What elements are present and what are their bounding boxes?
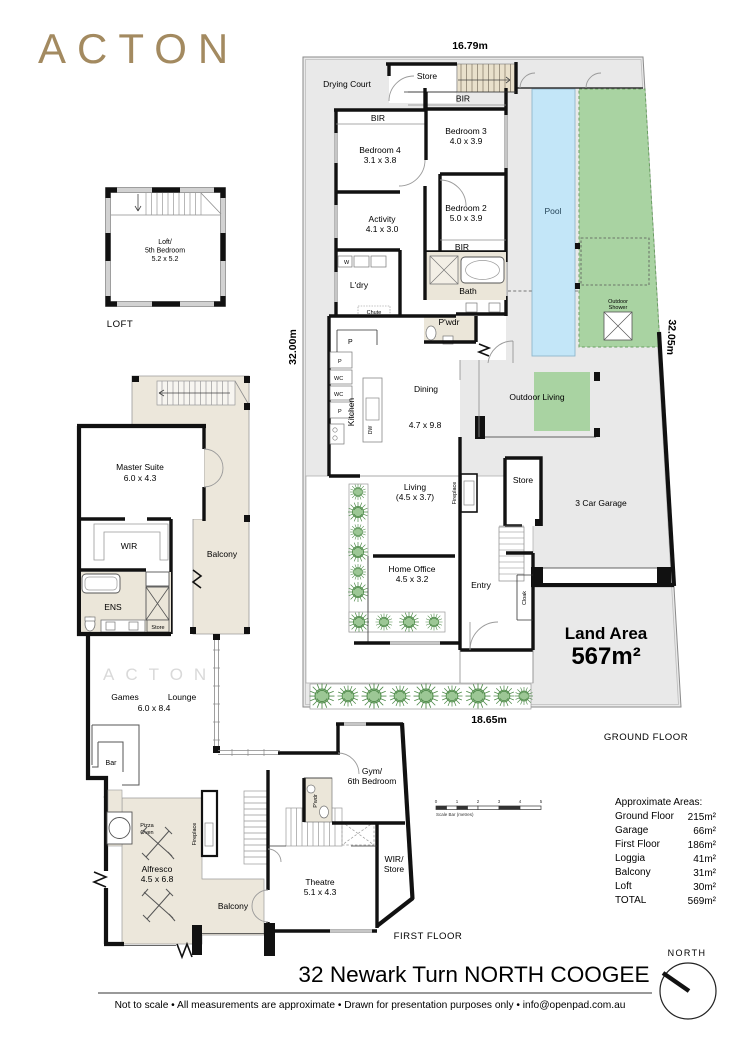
svg-text:BIR: BIR: [455, 242, 469, 252]
svg-text:WIR/: WIR/: [385, 854, 405, 864]
svg-text:Master Suite: Master Suite: [116, 462, 164, 472]
svg-text:Store: Store: [151, 625, 164, 631]
svg-text:Bath: Bath: [459, 286, 477, 296]
svg-text:DW: DW: [368, 426, 374, 435]
svg-text:Drying Court: Drying Court: [323, 79, 371, 89]
svg-text:Balcony: Balcony: [218, 901, 249, 911]
svg-text:Store: Store: [384, 864, 405, 874]
svg-text:(4.5 x 3.7): (4.5 x 3.7): [396, 492, 434, 502]
svg-text:215m²: 215m²: [688, 812, 717, 823]
svg-text:Theatre: Theatre: [305, 877, 335, 887]
svg-text:P: P: [348, 339, 353, 346]
svg-text:Balcony: Balcony: [615, 867, 651, 878]
svg-text:4.0 x 3.9: 4.0 x 3.9: [450, 136, 483, 146]
svg-text:Bedroom 2: Bedroom 2: [445, 203, 487, 213]
svg-text:P'wdr: P'wdr: [313, 794, 319, 808]
svg-text:32.05m: 32.05m: [664, 319, 678, 355]
svg-text:L'dry: L'dry: [350, 280, 369, 290]
svg-text:BIR: BIR: [456, 94, 470, 104]
svg-text:GROUND FLOOR: GROUND FLOOR: [604, 732, 688, 743]
svg-text:BIR: BIR: [371, 113, 385, 123]
svg-text:NORTH: NORTH: [668, 948, 707, 958]
svg-text:30m²: 30m²: [693, 882, 716, 893]
svg-text:Ground Floor: Ground Floor: [615, 811, 675, 822]
svg-text:Outdoor Living: Outdoor Living: [509, 392, 565, 402]
svg-text:66m²: 66m²: [693, 826, 716, 837]
svg-text:Loft/: Loft/: [158, 239, 172, 246]
svg-text:567m²: 567m²: [571, 643, 640, 670]
svg-text:Dining: Dining: [414, 384, 438, 394]
svg-text:Living: Living: [404, 482, 426, 492]
svg-text:6.0 x 8.4: 6.0 x 8.4: [138, 703, 171, 713]
svg-text:Garage: Garage: [615, 825, 649, 836]
svg-text:LOFT: LOFT: [107, 319, 134, 330]
svg-text:32.00m: 32.00m: [287, 329, 299, 365]
svg-text:Not to scale • All measureme: Not to scale • All measurements are appr…: [115, 1000, 626, 1011]
svg-text:5.1 x 4.3: 5.1 x 4.3: [304, 887, 337, 897]
svg-text:Activity: Activity: [369, 214, 397, 224]
svg-text:Kitchen: Kitchen: [346, 398, 356, 427]
svg-text:Cloak: Cloak: [522, 591, 528, 605]
svg-text:Games: Games: [111, 692, 138, 702]
svg-text:569m²: 569m²: [688, 896, 717, 907]
svg-text:186m²: 186m²: [688, 840, 717, 851]
svg-text:Store: Store: [417, 71, 438, 81]
svg-text:16.79m: 16.79m: [452, 40, 488, 52]
svg-text:Land Area: Land Area: [565, 624, 648, 643]
svg-text:5.0 x 3.9: 5.0 x 3.9: [450, 213, 483, 223]
svg-text:WC: WC: [334, 392, 343, 398]
svg-text:First Floor: First Floor: [615, 839, 661, 850]
svg-text:Bedroom 3: Bedroom 3: [445, 126, 487, 136]
svg-text:5th Bedroom: 5th Bedroom: [145, 248, 185, 255]
svg-text:Loggia: Loggia: [615, 853, 645, 864]
svg-text:4.5 x 6.8: 4.5 x 6.8: [141, 874, 174, 884]
svg-text:4.7 x 9.8: 4.7 x 9.8: [409, 420, 442, 430]
svg-text:Fireplace: Fireplace: [452, 482, 458, 505]
svg-text:TOTAL: TOTAL: [615, 895, 647, 906]
svg-text:ENS: ENS: [104, 602, 122, 612]
svg-text:31m²: 31m²: [693, 868, 716, 879]
svg-text:ACTON: ACTON: [38, 25, 239, 72]
svg-text:WIR: WIR: [121, 541, 138, 551]
svg-text:6.0 x 4.3: 6.0 x 4.3: [124, 473, 157, 483]
svg-text:Loft: Loft: [615, 881, 632, 892]
svg-text:Pool: Pool: [544, 206, 561, 216]
svg-text:6th Bedroom: 6th Bedroom: [348, 776, 397, 786]
svg-text:3.1 x 3.8: 3.1 x 3.8: [364, 155, 397, 165]
svg-text:18.65m: 18.65m: [471, 714, 507, 726]
svg-text:Balcony: Balcony: [207, 549, 238, 559]
svg-text:5.2 x 5.2: 5.2 x 5.2: [152, 256, 179, 263]
svg-text:P'wdr: P'wdr: [439, 317, 460, 327]
svg-text:Lounge: Lounge: [168, 692, 197, 702]
svg-text:3 Car Garage: 3 Car Garage: [575, 498, 627, 508]
svg-text:P: P: [338, 359, 342, 365]
svg-text:Approximate Areas:: Approximate Areas:: [615, 797, 702, 808]
svg-text:Home Office: Home Office: [388, 564, 435, 574]
svg-text:Scale Bar (metres): Scale Bar (metres): [436, 812, 474, 817]
svg-text:ACTON: ACTON: [103, 665, 217, 684]
svg-text:32 Newark Turn NORTH COOGEE: 32 Newark Turn NORTH COOGEE: [298, 962, 649, 987]
svg-text:41m²: 41m²: [693, 854, 716, 865]
svg-text:Pizza: Pizza: [140, 823, 154, 829]
svg-text:Gym/: Gym/: [362, 766, 383, 776]
svg-text:Alfresco: Alfresco: [142, 864, 173, 874]
svg-text:FIRST FLOOR: FIRST FLOOR: [394, 931, 463, 942]
svg-text:P: P: [338, 409, 342, 415]
svg-text:WC: WC: [334, 376, 343, 382]
svg-text:4.5 x 3.2: 4.5 x 3.2: [396, 574, 429, 584]
svg-text:W: W: [344, 260, 350, 266]
svg-text:Fireplace: Fireplace: [192, 823, 198, 846]
svg-text:Bedroom 4: Bedroom 4: [359, 145, 401, 155]
svg-text:Store: Store: [513, 475, 534, 485]
svg-text:Entry: Entry: [471, 580, 492, 590]
svg-text:4.1 x 3.0: 4.1 x 3.0: [366, 224, 399, 234]
svg-text:Bar: Bar: [106, 760, 118, 767]
svg-text:Shower: Shower: [609, 305, 628, 311]
